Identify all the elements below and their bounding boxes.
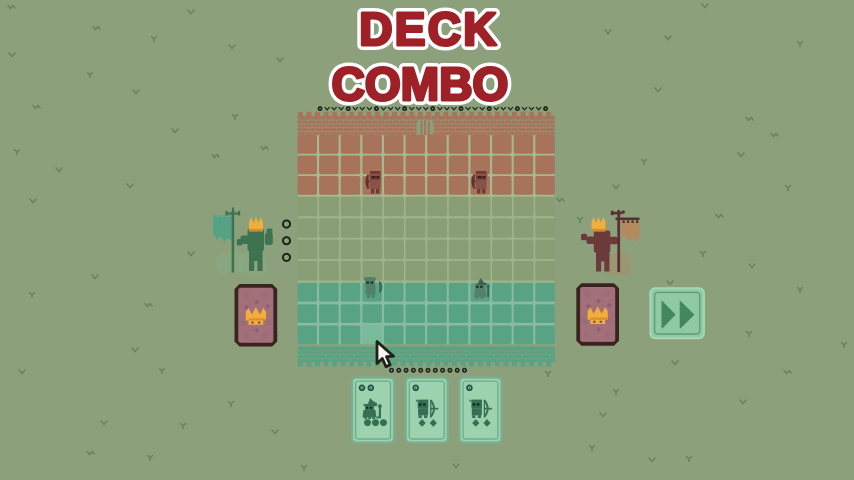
svg-text:DECK: DECK (359, 3, 499, 55)
svg-text:COMBO: COMBO (332, 58, 509, 110)
